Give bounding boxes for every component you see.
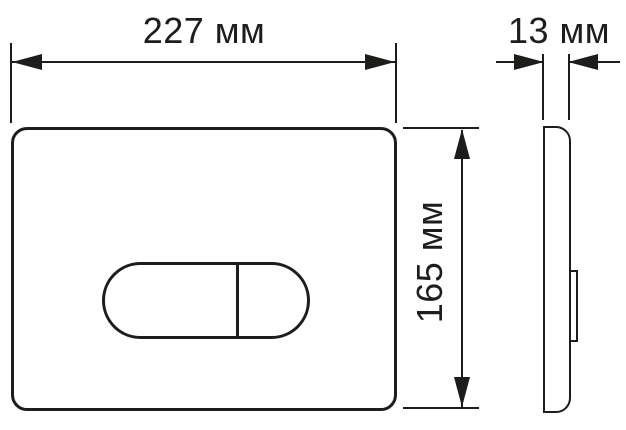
height-extension-line-bottom [403,407,479,409]
dimensional-drawing-canvas: 227 мм 13 мм 165 мм [0,0,626,430]
width-dimension-label: 227 мм [143,13,266,49]
depth-dimension-label: 13 мм [508,13,610,49]
width-dimension-line [11,61,397,63]
width-extension-line-right [395,43,397,123]
flush-plate-side-view [543,126,571,413]
arrowhead-down-icon [454,377,470,407]
arrowhead-left-icon [568,54,598,70]
arrowhead-left-icon [12,54,42,70]
height-dimension-label: 165 мм [412,201,448,324]
side-view-mounting-clip [569,270,578,342]
height-dimension-line [461,130,463,407]
flush-button-outline [102,262,310,339]
arrowhead-up-icon [454,129,470,159]
flush-button-divider-line [236,263,239,338]
arrowhead-right-icon [514,54,544,70]
arrowhead-right-icon [365,54,395,70]
